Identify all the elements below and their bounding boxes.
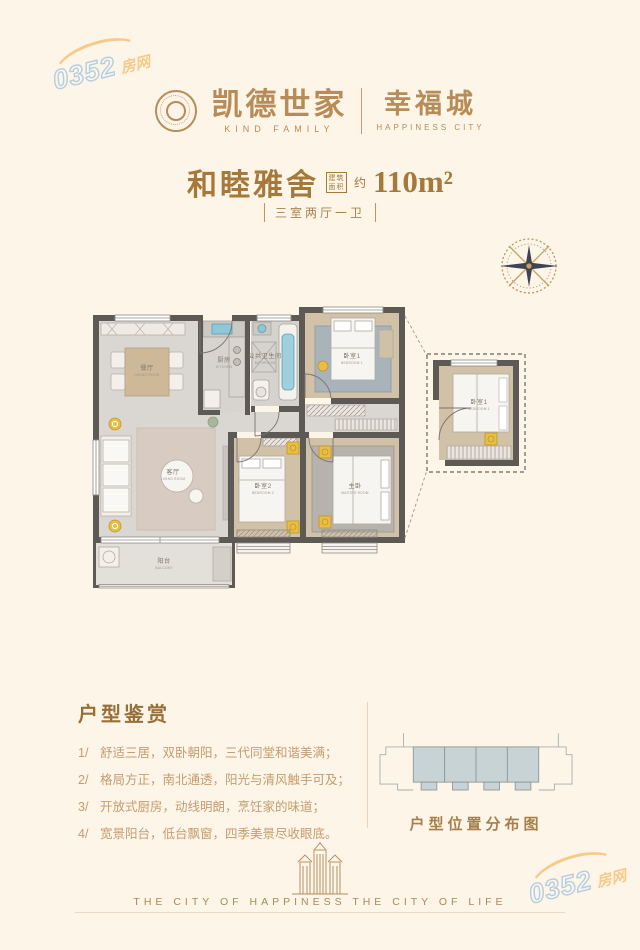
label-bedroom1-en: BEDROOM 1: [341, 361, 363, 365]
label-dining-cn: 餐厅: [140, 364, 153, 372]
watermark-suffix: 房网: [595, 867, 628, 891]
item-number: 4/: [78, 821, 100, 848]
appreciation-item: 1/舒适三居，双卧朝阳，三代同堂和谐美满；: [78, 740, 364, 767]
item-number: 1/: [78, 740, 100, 767]
label-balcony-cn: 阳台: [157, 557, 170, 565]
item-number: 2/: [78, 767, 100, 794]
appreciation-item: 3/开放式厨房，动线明朗，烹饪家的味道；: [78, 794, 364, 821]
approx-label: 约: [354, 174, 366, 191]
dining-furniture: [101, 323, 185, 396]
brand-seal-icon: [155, 90, 197, 132]
label-detail-en: BEDROOM 1: [468, 407, 490, 411]
page: 0352 房网 凯德世家 KIND FAMILY 幸福城 HAPPINESS C…: [0, 0, 640, 950]
label-kitchen-en: KITCHEN: [216, 365, 232, 369]
layout-subtitle-row: 三室两厅一卫: [0, 203, 640, 222]
city-building-icon: [288, 842, 352, 896]
location-caption: 户型位置分布图: [378, 813, 574, 834]
label-master-en: MASTER ROOM: [341, 491, 368, 495]
label-bedroom2-en: BEDROOM 2: [252, 491, 274, 495]
item-text: 宽景阳台，低台飘窗，四季美景尽收眼底。: [100, 827, 338, 841]
item-text: 舒适三居，双卧朝阳，三代同堂和谐美满；: [100, 746, 338, 760]
label-master-cn: 主卧: [348, 482, 361, 490]
label-detail-cn: 卧室1: [470, 398, 487, 406]
building-location-diagram: [378, 733, 574, 798]
item-text: 开放式厨房，动线明朗，烹饪家的味道；: [100, 800, 325, 814]
area-label-box: 建筑面积: [326, 172, 347, 193]
footer-slogan: THE CITY OF HAPPINESS THE CITY OF LIFE: [0, 896, 640, 908]
bedroom-detail-box: [405, 316, 525, 538]
location-section: 户型位置分布图: [378, 733, 574, 834]
item-number: 3/: [78, 794, 100, 821]
area-value: 110m²: [373, 164, 453, 200]
label-living-cn: 客厅: [166, 468, 179, 476]
label-bath-en: BATHROOM: [255, 361, 276, 365]
brand-name-en: KIND FAMILY: [211, 124, 347, 134]
label-living-en: LIVING ROOM: [161, 477, 186, 481]
project-name-en: HAPPINESS CITY: [376, 123, 484, 132]
watermark-swoosh-icon: [50, 29, 146, 93]
header-divider: [361, 88, 362, 134]
brand-header: 凯德世家 KIND FAMILY 幸福城 HAPPINESS CITY: [0, 88, 640, 134]
section-divider: [367, 702, 368, 828]
label-bath-cn: 公共卫生间: [248, 352, 281, 360]
unit-name: 和睦雅舍: [187, 160, 319, 204]
label-balcony-en: BALCONY: [155, 566, 173, 570]
footer-rule: [75, 912, 565, 913]
watermark-suffix: 房网: [119, 53, 152, 77]
appreciation-section: 户型鉴赏 1/舒适三居，双卧朝阳，三代同堂和谐美满； 2/格局方正，南北通透，阳…: [78, 698, 364, 848]
project-name-cn: 幸福城: [376, 91, 484, 118]
label-bedroom2-cn: 卧室2: [254, 482, 271, 490]
floorplan: 餐厅 DINING ROOM 厨房 KITCHEN 公共卫生间 BATHROOM…: [85, 290, 540, 600]
item-text: 格局方正，南北通透，阳光与清风触手可及；: [100, 773, 350, 787]
label-kitchen-cn: 厨房: [217, 356, 230, 364]
label-bedroom1-cn: 卧室1: [343, 352, 360, 360]
appreciation-item: 2/格局方正，南北通透，阳光与清风触手可及；: [78, 767, 364, 794]
label-dining-en: DINING ROOM: [134, 373, 159, 377]
unit-title-row: 和睦雅舍 建筑面积 约 110m²: [0, 160, 640, 204]
brand-name-cn: 凯德世家: [211, 89, 347, 120]
appreciation-list: 1/舒适三居，双卧朝阳，三代同堂和谐美满； 2/格局方正，南北通透，阳光与清风触…: [78, 740, 364, 848]
appreciation-heading: 户型鉴赏: [78, 698, 364, 727]
layout-subtitle: 三室两厅一卫: [264, 203, 376, 222]
